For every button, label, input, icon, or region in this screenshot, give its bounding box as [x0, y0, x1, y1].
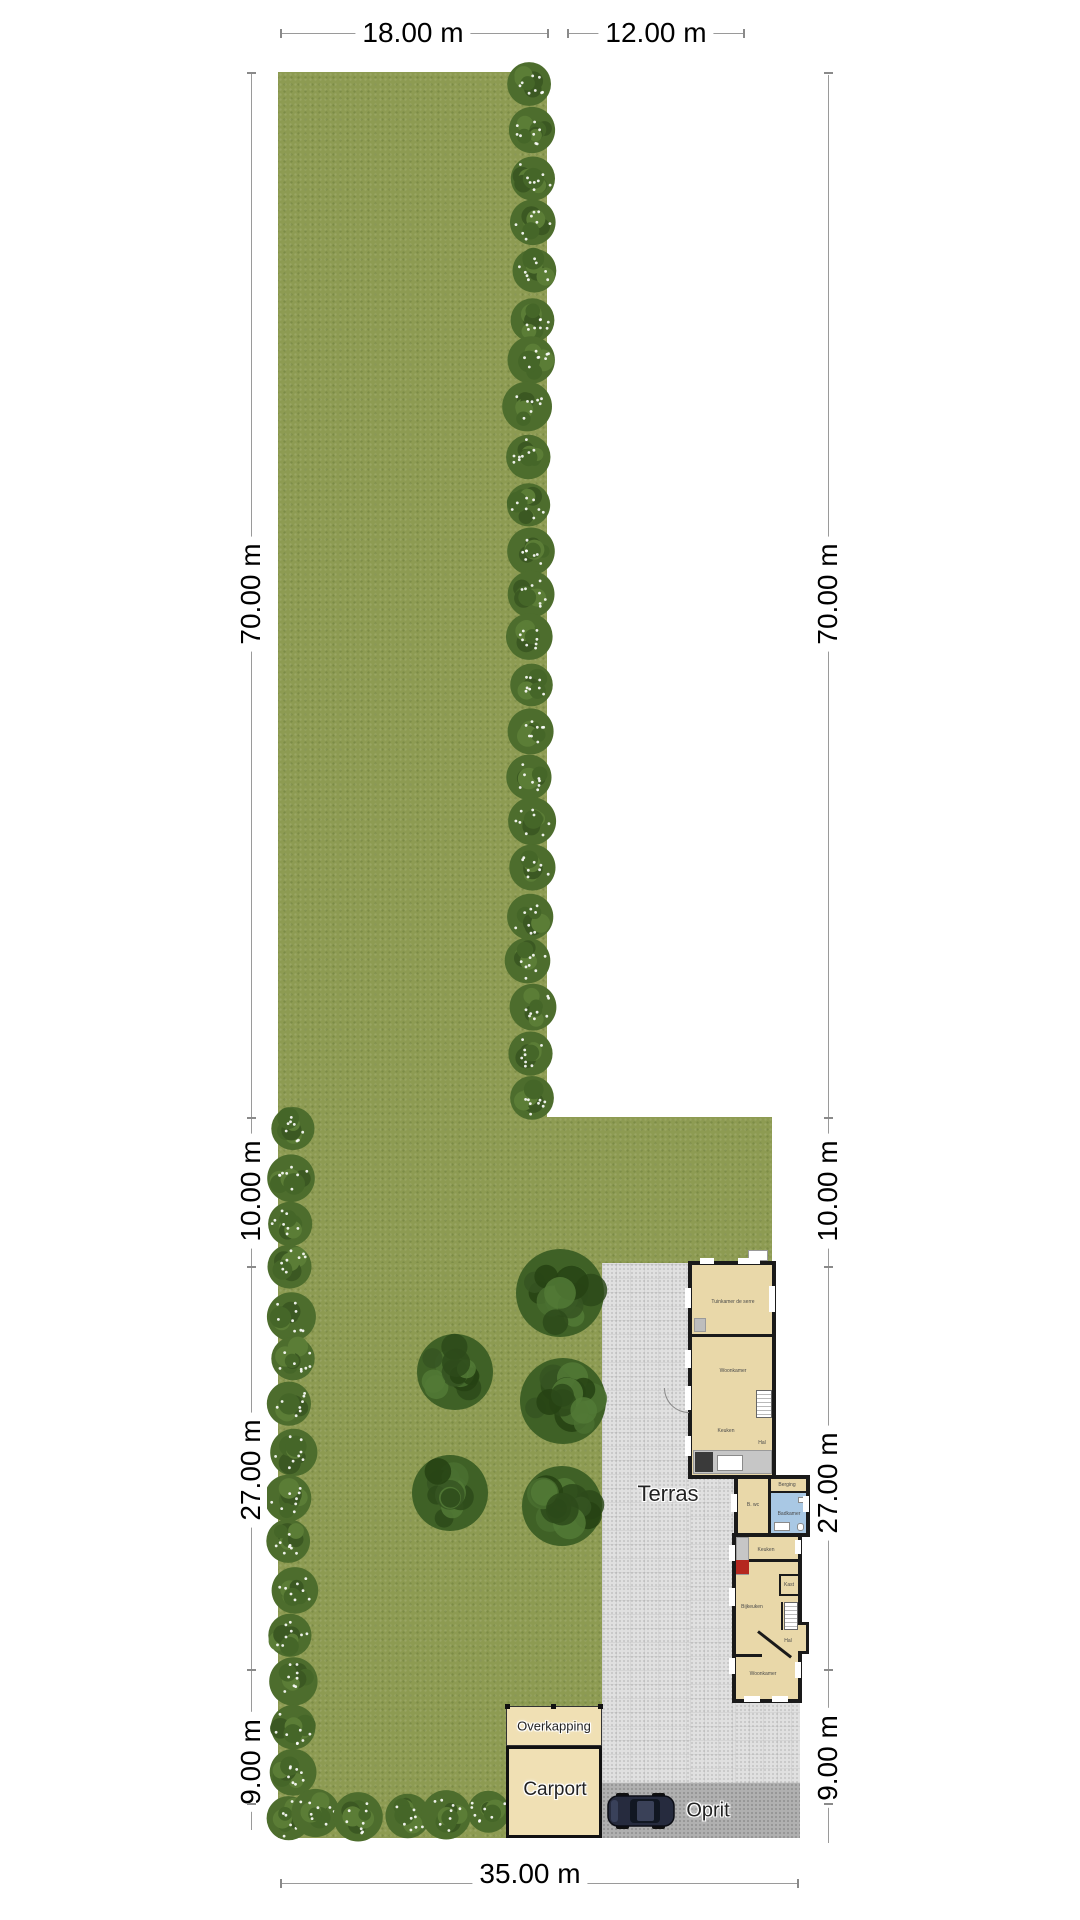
room-label: Kast — [784, 1582, 794, 1588]
dimension-tick — [824, 1803, 833, 1805]
dimension-label: 10.00 m — [812, 1133, 844, 1248]
room-label: Keuken — [718, 1428, 735, 1434]
window — [731, 1494, 737, 1512]
dimension-tick — [280, 29, 282, 38]
garden-band-grass — [278, 1117, 772, 1263]
interior-wall — [692, 1334, 772, 1337]
window — [772, 1696, 788, 1702]
room-label: Woonkamer — [720, 1368, 747, 1374]
interior-wall — [771, 1491, 806, 1493]
dimension-tick — [247, 1117, 256, 1119]
window — [803, 1496, 809, 1512]
stove — [695, 1452, 713, 1472]
window — [729, 1588, 735, 1606]
window — [685, 1288, 691, 1308]
dimension-label: 9.00 m — [235, 1712, 267, 1812]
window — [769, 1286, 775, 1312]
window — [700, 1258, 714, 1264]
terrace-paving — [690, 1477, 735, 1783]
window — [795, 1662, 801, 1678]
dimension-tick — [797, 1879, 799, 1888]
driveway-label: Oprit — [686, 1800, 729, 1823]
overkapping-label: Overkapping — [517, 1719, 591, 1734]
terrace-label: Terras — [637, 1481, 698, 1507]
room-label: Bijkeuken — [741, 1604, 763, 1610]
window — [685, 1436, 691, 1456]
car — [606, 1793, 676, 1829]
bathtub — [774, 1522, 790, 1531]
canopy-post — [598, 1704, 603, 1709]
canopy-post — [505, 1704, 510, 1709]
dimension-label: 9.00 m — [812, 1708, 844, 1808]
door-opening — [685, 1386, 691, 1410]
garden-strip-grass — [278, 72, 547, 1117]
room-label: Tuinkamer de serre — [710, 1299, 756, 1305]
interior-wall — [779, 1594, 798, 1596]
room-label: Badkamer — [778, 1511, 801, 1517]
room-label: Hal — [784, 1638, 792, 1644]
dimension-label: 12.00 m — [598, 17, 713, 49]
dimension-tick — [743, 29, 745, 38]
window — [729, 1658, 735, 1674]
room-label: Keuken — [758, 1547, 775, 1553]
dimension-label: 18.00 m — [355, 17, 470, 49]
room-label: Berging — [778, 1482, 795, 1488]
dimension-tick — [247, 1803, 256, 1805]
dimension-tick — [247, 72, 256, 74]
window — [738, 1258, 760, 1264]
dimension-tick — [280, 1879, 282, 1888]
dimension-tick — [567, 29, 569, 38]
interior-wall — [768, 1479, 771, 1533]
carport-label: Carport — [523, 1779, 586, 1801]
dimension-tick — [824, 1669, 833, 1671]
window — [795, 1540, 801, 1554]
window — [729, 1545, 735, 1561]
site-plan: Terras Oprit Carport Overkapping 18.00 m… — [0, 0, 1080, 1920]
kitchen-sink — [717, 1455, 743, 1471]
dimension-label: 27.00 m — [812, 1425, 844, 1540]
dimension-label: 10.00 m — [235, 1133, 267, 1248]
dimension-line-right — [828, 75, 829, 1843]
window — [744, 1696, 760, 1702]
room-label: B. wc — [747, 1502, 759, 1508]
dimension-tick — [824, 1266, 833, 1268]
stove — [736, 1560, 749, 1574]
terrace-paving — [735, 1700, 800, 1783]
toilet — [797, 1523, 804, 1531]
dimension-tick — [824, 72, 833, 74]
dimension-label: 27.00 m — [235, 1412, 267, 1527]
appliance — [694, 1318, 706, 1332]
staircase — [756, 1390, 772, 1418]
dimension-label: 70.00 m — [812, 536, 844, 651]
staircase — [784, 1602, 798, 1630]
room-label: Woonkamer — [750, 1671, 777, 1677]
dimension-tick — [824, 1117, 833, 1119]
interior-wall — [779, 1576, 781, 1596]
room-label: Hal — [758, 1440, 766, 1446]
dimension-tick — [547, 29, 549, 38]
terrace-paving — [602, 1263, 690, 1783]
hall-bump — [798, 1622, 809, 1654]
dimension-label: 35.00 m — [472, 1858, 587, 1890]
interior-wall — [781, 1602, 783, 1630]
dimension-line-left — [251, 72, 252, 1830]
interior-wall — [779, 1574, 798, 1576]
dimension-label: 70.00 m — [235, 536, 267, 651]
canopy-post — [551, 1704, 556, 1709]
interior-wall — [736, 1654, 762, 1657]
dimension-tick — [247, 1266, 256, 1268]
dimension-tick — [247, 1669, 256, 1671]
window — [685, 1350, 691, 1368]
